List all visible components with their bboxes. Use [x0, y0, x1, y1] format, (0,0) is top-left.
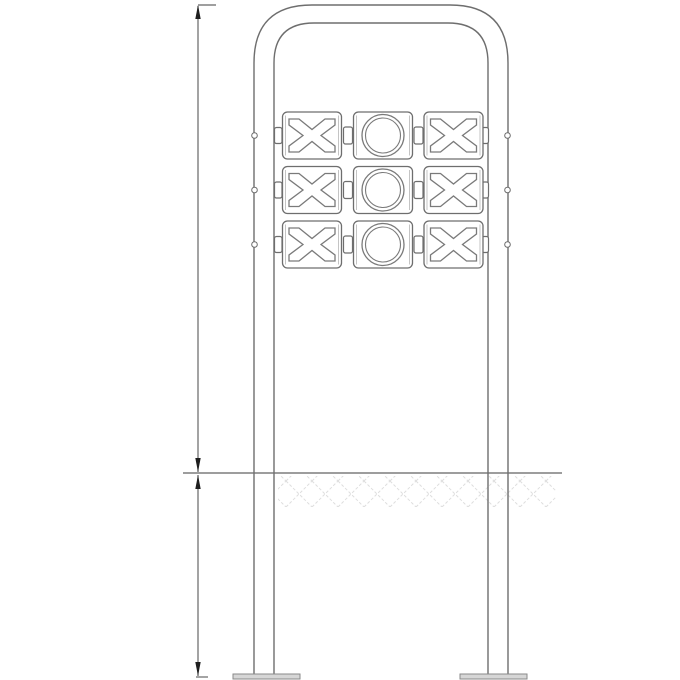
drum-block	[424, 167, 483, 214]
dimension-upper-arrow-up-icon	[195, 5, 200, 19]
dimension-lower	[195, 475, 208, 677]
drums-grid	[252, 112, 511, 268]
drum-block	[354, 167, 413, 214]
base-plate-right	[460, 674, 527, 679]
drum-block	[354, 221, 413, 268]
base-plate-left	[233, 674, 300, 679]
frame-tube	[254, 5, 508, 675]
axle-stub	[275, 182, 283, 198]
post-bolt	[252, 242, 258, 248]
dimension-upper-arrow-down-icon	[195, 458, 200, 472]
axle-stub	[414, 182, 423, 199]
drawing-canvas	[0, 0, 680, 680]
drum-block	[283, 112, 342, 159]
post-bolt	[505, 133, 511, 139]
ground-hatch	[278, 476, 556, 507]
drum-block	[283, 167, 342, 214]
axle-stub	[414, 236, 423, 253]
dimension-lower-arrow-down-icon	[195, 662, 200, 676]
drum-block	[354, 112, 413, 159]
frame-outer-line	[254, 5, 508, 675]
axle-stub	[344, 182, 353, 199]
elevation-drawing	[0, 0, 680, 680]
axle-stub	[275, 128, 283, 144]
post-bolt	[252, 133, 258, 139]
post-bolt	[505, 242, 511, 248]
post-bolt	[505, 187, 511, 193]
axle-stub	[344, 127, 353, 144]
dimension-lower-arrow-up-icon	[195, 475, 200, 489]
drum-block	[424, 221, 483, 268]
drum-block	[283, 221, 342, 268]
post-bolt	[252, 187, 258, 193]
axle-stub	[275, 237, 283, 253]
drum-block	[424, 112, 483, 159]
dimension-upper	[195, 5, 216, 472]
axle-stub	[414, 127, 423, 144]
axle-stub	[344, 236, 353, 253]
